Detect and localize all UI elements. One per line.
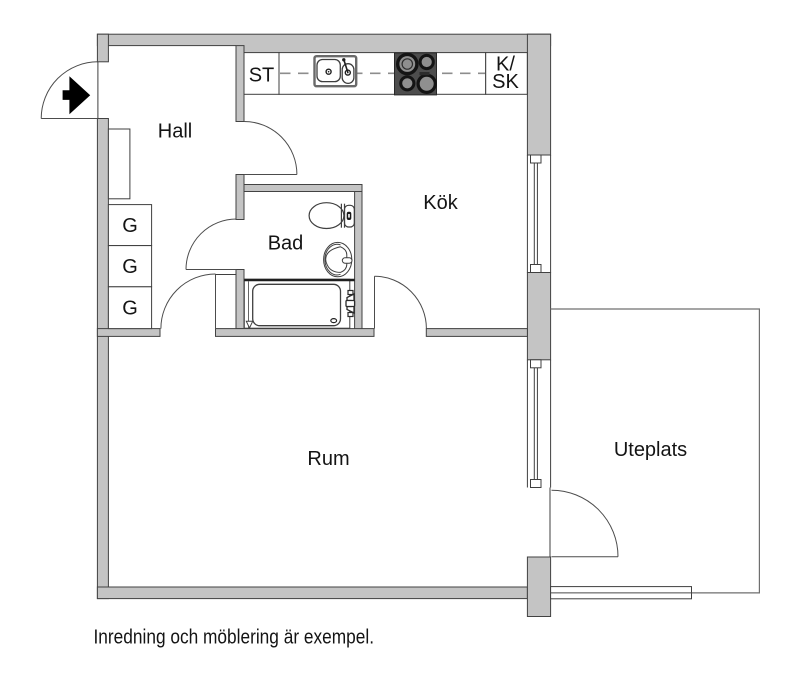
svg-text:Bad: Bad xyxy=(268,233,304,255)
svg-text:ST: ST xyxy=(249,64,275,86)
svg-text:Inredning och möblering är exe: Inredning och möblering är exempel. xyxy=(94,626,375,648)
svg-text:Kök: Kök xyxy=(423,192,458,214)
svg-text:G: G xyxy=(122,256,138,278)
svg-text:G: G xyxy=(122,298,138,320)
svg-text:Rum: Rum xyxy=(307,448,349,470)
svg-text:SK: SK xyxy=(492,71,519,93)
svg-text:Hall: Hall xyxy=(158,121,192,143)
svg-text:Uteplats: Uteplats xyxy=(614,439,687,461)
svg-text:G: G xyxy=(122,215,138,237)
